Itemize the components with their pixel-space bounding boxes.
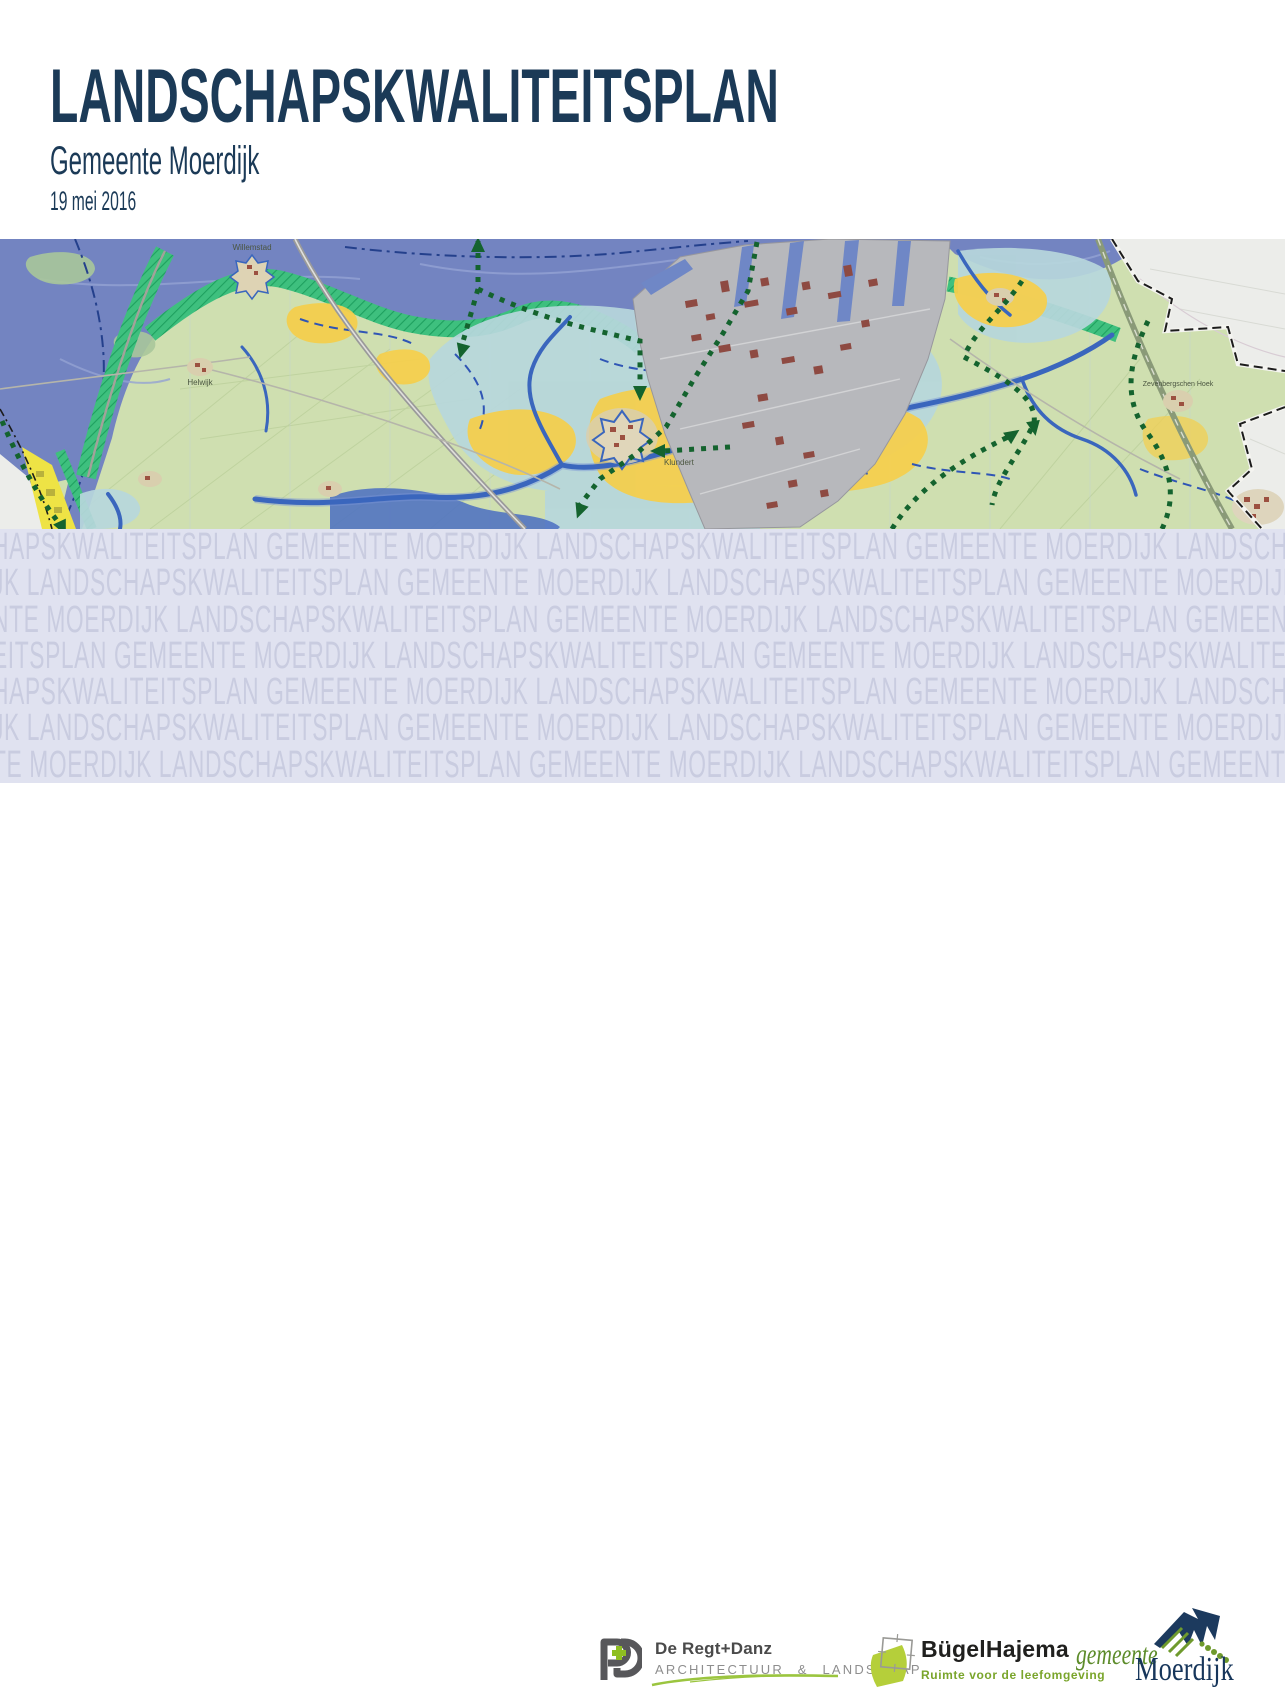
watermark-row: TE MOERDIJK LANDSCHAPSKWALITEITSPLAN GEM… bbox=[0, 747, 1285, 783]
bugelhajema-logo bbox=[866, 1634, 916, 1697]
bugelhajema-tagline: Ruimte voor de leefomgeving bbox=[921, 1668, 1105, 1682]
page-subtitle-text: Gemeente Moerdijk bbox=[50, 141, 259, 181]
page-subtitle: Gemeente Moerdijk bbox=[50, 141, 399, 181]
map-label-klundert: Klundert bbox=[664, 458, 695, 467]
page-title-text: LANDSCHAPSKWALITEITSPLAN bbox=[50, 59, 779, 135]
de-regt-danz-logo-mark bbox=[596, 1636, 642, 1682]
de-regt-danz-logo bbox=[596, 1636, 642, 1687]
de-regt-danz-swoosh-icon bbox=[650, 1671, 840, 1687]
watermark-band: HAPSKWALITEITSPLAN GEMEENTE MOERDIJK LAN… bbox=[0, 529, 1285, 783]
watermark-row: NTE MOERDIJK LANDSCHAPSKWALITEITSPLAN GE… bbox=[0, 602, 1285, 638]
map-image: Willemstad Helwijk Klundert Zevenbergsch… bbox=[0, 239, 1285, 529]
watermark-row: JK LANDSCHAPSKWALITEITSPLAN GEMEENTE MOE… bbox=[0, 710, 1285, 746]
page-date: 19 mei 2016 bbox=[50, 188, 199, 215]
watermark-row: EITSPLAN GEMEENTE MOERDIJK LANDSCHAPSKWA… bbox=[0, 638, 1285, 674]
map-label-zevenbergschen-hoek: Zevenbergschen Hoek bbox=[1143, 381, 1214, 388]
watermark-row: HAPSKWALITEITSPLAN GEMEENTE MOERDIJK LAN… bbox=[0, 674, 1285, 710]
gemeente-moerdijk-text-moerdijk: Moerdijk bbox=[1135, 1653, 1262, 1687]
map-label-willemstad: Willemstad bbox=[232, 243, 271, 252]
map-svg: Willemstad Helwijk Klundert Zevenbergsch… bbox=[0, 239, 1285, 529]
watermark-row: HAPSKWALITEITSPLAN GEMEENTE MOERDIJK LAN… bbox=[0, 529, 1285, 565]
bugelhajema-logo-mark bbox=[866, 1634, 916, 1692]
page-title: LANDSCHAPSKWALITEITSPLAN bbox=[50, 59, 1245, 135]
map-label-helwijk: Helwijk bbox=[187, 378, 213, 387]
page-date-text: 19 mei 2016 bbox=[50, 188, 136, 215]
watermark-row: JK LANDSCHAPSKWALITEITSPLAN GEMEENTE MOE… bbox=[0, 565, 1285, 601]
footer-logos: De Regt+Danz ARCHITECTUUR & LANDSCHAP Bü… bbox=[0, 800, 1285, 905]
